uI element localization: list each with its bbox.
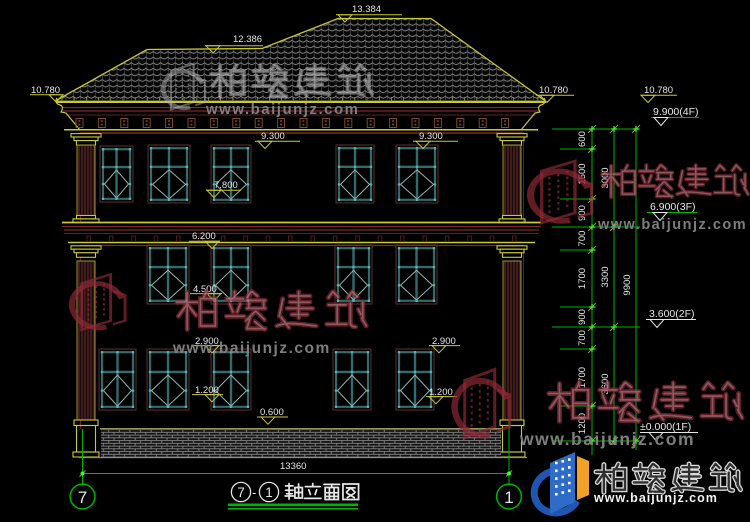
svg-text:6.200: 6.200 bbox=[192, 231, 216, 242]
svg-text:9.300: 9.300 bbox=[419, 131, 443, 142]
svg-text:7.800: 7.800 bbox=[214, 180, 238, 191]
svg-text:700: 700 bbox=[577, 231, 588, 247]
svg-text:1: 1 bbox=[504, 488, 513, 507]
svg-text:7: 7 bbox=[78, 488, 87, 507]
svg-text:www.baijunjz.com: www.baijunjz.com bbox=[205, 101, 359, 118]
svg-text:10.780: 10.780 bbox=[539, 85, 568, 96]
svg-text:1700: 1700 bbox=[577, 268, 588, 289]
svg-text:9.900(4F): 9.900(4F) bbox=[653, 106, 699, 118]
svg-text:900: 900 bbox=[577, 309, 588, 325]
svg-text:3300: 3300 bbox=[600, 266, 611, 287]
svg-text:900: 900 bbox=[577, 205, 588, 221]
svg-text:600: 600 bbox=[577, 131, 588, 147]
svg-text:0.600: 0.600 bbox=[260, 407, 284, 418]
svg-text:1: 1 bbox=[265, 485, 273, 500]
svg-text:13360: 13360 bbox=[280, 461, 306, 472]
svg-text:13.384: 13.384 bbox=[352, 4, 381, 15]
svg-text:12.386: 12.386 bbox=[233, 34, 262, 45]
svg-text:www.baijunjz.com: www.baijunjz.com bbox=[597, 217, 747, 233]
svg-text:9.300: 9.300 bbox=[261, 131, 285, 142]
svg-text:700: 700 bbox=[577, 330, 588, 346]
svg-text:www.baijunjz.com: www.baijunjz.com bbox=[593, 491, 718, 505]
svg-text:3.600(2F): 3.600(2F) bbox=[649, 308, 695, 320]
svg-text:7: 7 bbox=[237, 485, 245, 500]
svg-text:www.baijunjz.com: www.baijunjz.com bbox=[172, 340, 331, 357]
svg-text:6.900(3F): 6.900(3F) bbox=[650, 201, 696, 213]
svg-text:10.780: 10.780 bbox=[644, 85, 673, 96]
svg-text:-: - bbox=[252, 485, 256, 500]
svg-text:9900: 9900 bbox=[622, 274, 633, 295]
svg-text:www.baijunjz.com: www.baijunjz.com bbox=[519, 429, 695, 449]
